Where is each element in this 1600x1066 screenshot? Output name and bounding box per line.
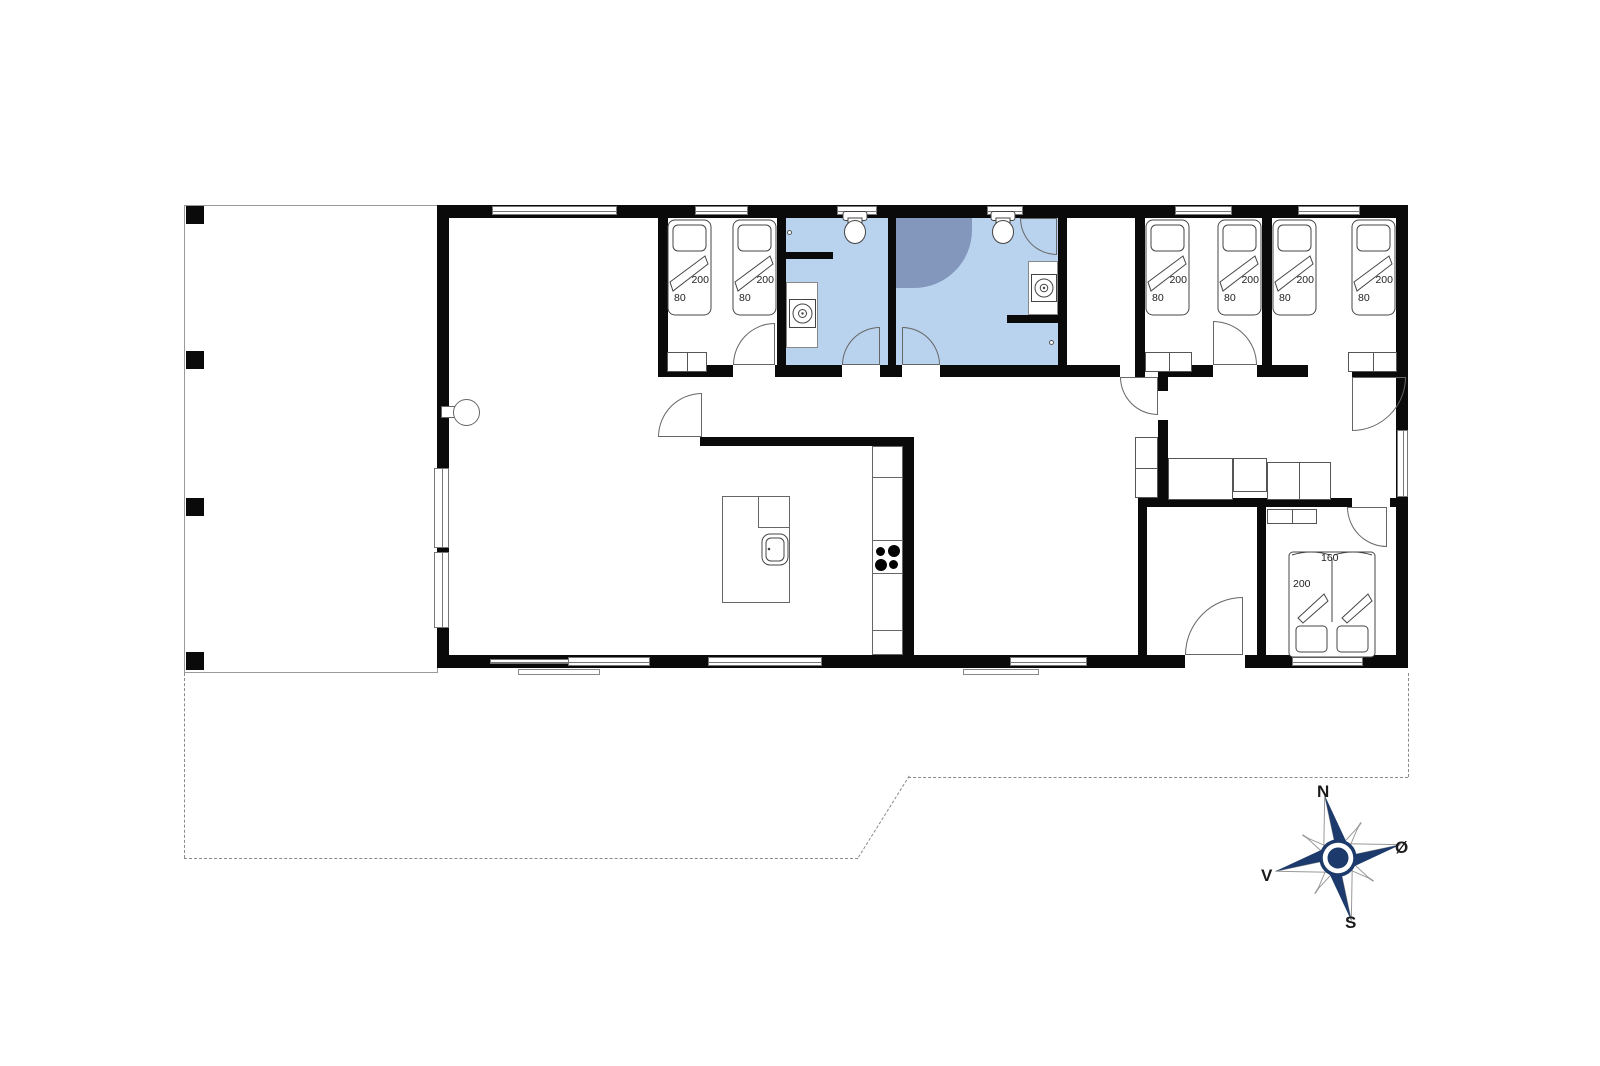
sliding-door-panel xyxy=(963,669,1039,675)
bed-length-label: 200 xyxy=(1241,274,1259,286)
terrace-boundary-dashed xyxy=(184,858,858,859)
cabinet xyxy=(1267,509,1317,524)
window xyxy=(708,657,822,666)
bed-length-label: 200 xyxy=(1169,274,1187,286)
wall-segment xyxy=(777,205,786,377)
terrace-boundary-dashed xyxy=(1408,673,1409,777)
wall-segment xyxy=(1257,365,1308,377)
cabinet xyxy=(667,352,707,372)
toilet-icon xyxy=(984,211,1022,245)
carport-post xyxy=(186,351,204,369)
toilet-icon xyxy=(836,211,874,245)
wall-segment xyxy=(786,252,833,259)
single-bed: 200 80 xyxy=(1351,219,1396,316)
carport-post xyxy=(186,652,204,670)
single-bed: 200 80 xyxy=(1272,219,1317,316)
window xyxy=(1010,657,1087,666)
bed-length-label: 200 xyxy=(691,274,709,286)
wall-segment xyxy=(940,365,1120,377)
bed-width-label: 80 xyxy=(1358,292,1370,304)
window xyxy=(1292,657,1363,666)
wall-segment xyxy=(1390,498,1408,507)
window xyxy=(568,657,650,666)
stove-burner xyxy=(876,547,885,556)
cabinet xyxy=(1348,352,1397,372)
bed-width-label: 80 xyxy=(1279,292,1291,304)
carport-post xyxy=(186,206,204,224)
counter-divider xyxy=(872,477,903,478)
compass-rose-icon xyxy=(1253,773,1423,943)
sideboard xyxy=(1233,458,1267,492)
washbasin-icon xyxy=(1031,274,1057,302)
stove-burner xyxy=(888,545,900,557)
cabinet xyxy=(1145,352,1192,372)
door-arc xyxy=(1185,597,1243,655)
wall-column-icon xyxy=(453,399,480,426)
island-corner-line xyxy=(758,496,759,527)
compass-label-east: Ø xyxy=(1395,838,1408,858)
wall-segment xyxy=(1007,315,1058,323)
counter-divider xyxy=(872,573,903,574)
wall-segment xyxy=(1158,377,1168,391)
bed-length-label: 200 xyxy=(756,274,774,286)
wall-segment xyxy=(1135,205,1145,377)
terrace-boundary-dashed xyxy=(858,776,910,858)
single-bed: 200 80 xyxy=(1145,219,1190,316)
sideboard xyxy=(1168,458,1233,500)
single-bed: 200 80 xyxy=(732,219,777,316)
wall-segment xyxy=(903,446,914,655)
bed-width-label: 80 xyxy=(1152,292,1164,304)
bed-width-label: 80 xyxy=(674,292,686,304)
wall-segment xyxy=(1158,420,1168,505)
window xyxy=(1397,430,1408,497)
wall-segment xyxy=(1058,205,1067,377)
compass-label-south: S xyxy=(1345,913,1356,933)
sliding-door-panel xyxy=(518,669,600,675)
window xyxy=(490,659,570,664)
window xyxy=(492,206,617,215)
wall-segment xyxy=(1138,507,1147,655)
bed-length-label: 200 xyxy=(1296,274,1314,286)
window xyxy=(434,468,449,548)
double-bed: 160 200 xyxy=(1288,548,1376,658)
wall-segment xyxy=(888,205,896,377)
carport-outline xyxy=(184,205,438,673)
washbasin-icon xyxy=(789,299,816,328)
wall-segment xyxy=(775,365,842,377)
door-arc xyxy=(1120,377,1158,415)
window xyxy=(695,206,748,215)
island-corner-line xyxy=(758,527,790,528)
bed-width-label: 80 xyxy=(739,292,751,304)
stove-burner xyxy=(875,559,887,571)
bed-length-label: 200 xyxy=(1293,578,1311,590)
window xyxy=(434,552,449,628)
cabinet xyxy=(1135,437,1158,498)
counter-divider xyxy=(872,540,903,541)
window xyxy=(1175,206,1232,215)
carport-post xyxy=(186,498,204,516)
terrace-boundary-dashed xyxy=(184,673,185,858)
sideboard xyxy=(1267,462,1331,500)
door-stop xyxy=(1049,340,1054,345)
island-sink-icon xyxy=(761,533,789,566)
compass-label-north: N xyxy=(1317,782,1329,802)
compass-label-west: V xyxy=(1261,866,1272,886)
window xyxy=(1298,206,1360,215)
wall-segment xyxy=(1257,507,1266,655)
bed-width-label: 160 xyxy=(1321,552,1339,564)
counter-divider xyxy=(872,630,903,631)
single-bed: 200 80 xyxy=(1217,219,1262,316)
door-stop xyxy=(787,230,792,235)
door-arc xyxy=(1347,507,1387,547)
door-opening xyxy=(1185,655,1245,668)
bed-length-label: 200 xyxy=(1375,274,1393,286)
door-arc xyxy=(733,323,775,365)
wall-segment xyxy=(880,365,902,377)
stove-burner xyxy=(889,560,898,569)
wall-segment xyxy=(700,437,914,446)
single-bed: 200 80 xyxy=(667,219,712,316)
door-arc xyxy=(1213,321,1257,365)
wall-segment xyxy=(1262,205,1272,377)
floor-plan: 200 80 200 80 200 80 200 80 xyxy=(0,0,1600,1066)
bed-width-label: 80 xyxy=(1224,292,1236,304)
door-arc xyxy=(658,393,702,437)
